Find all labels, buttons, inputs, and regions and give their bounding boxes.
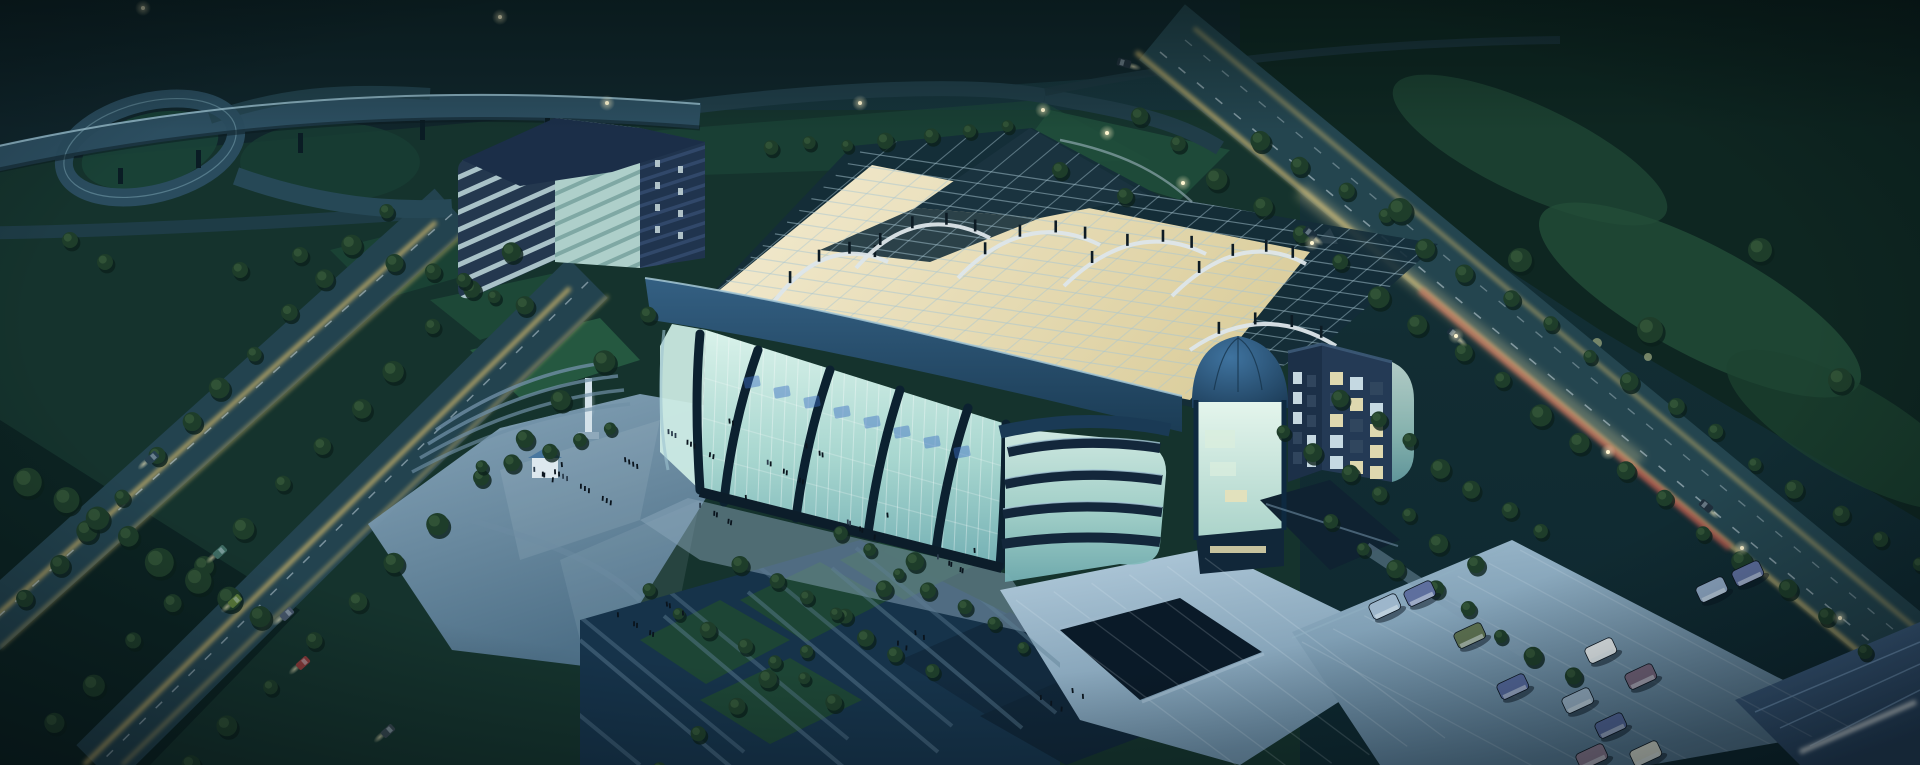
vignette <box>0 0 1920 765</box>
architectural-rendering-scene <box>0 0 1920 765</box>
scene-canvas <box>0 0 1920 765</box>
